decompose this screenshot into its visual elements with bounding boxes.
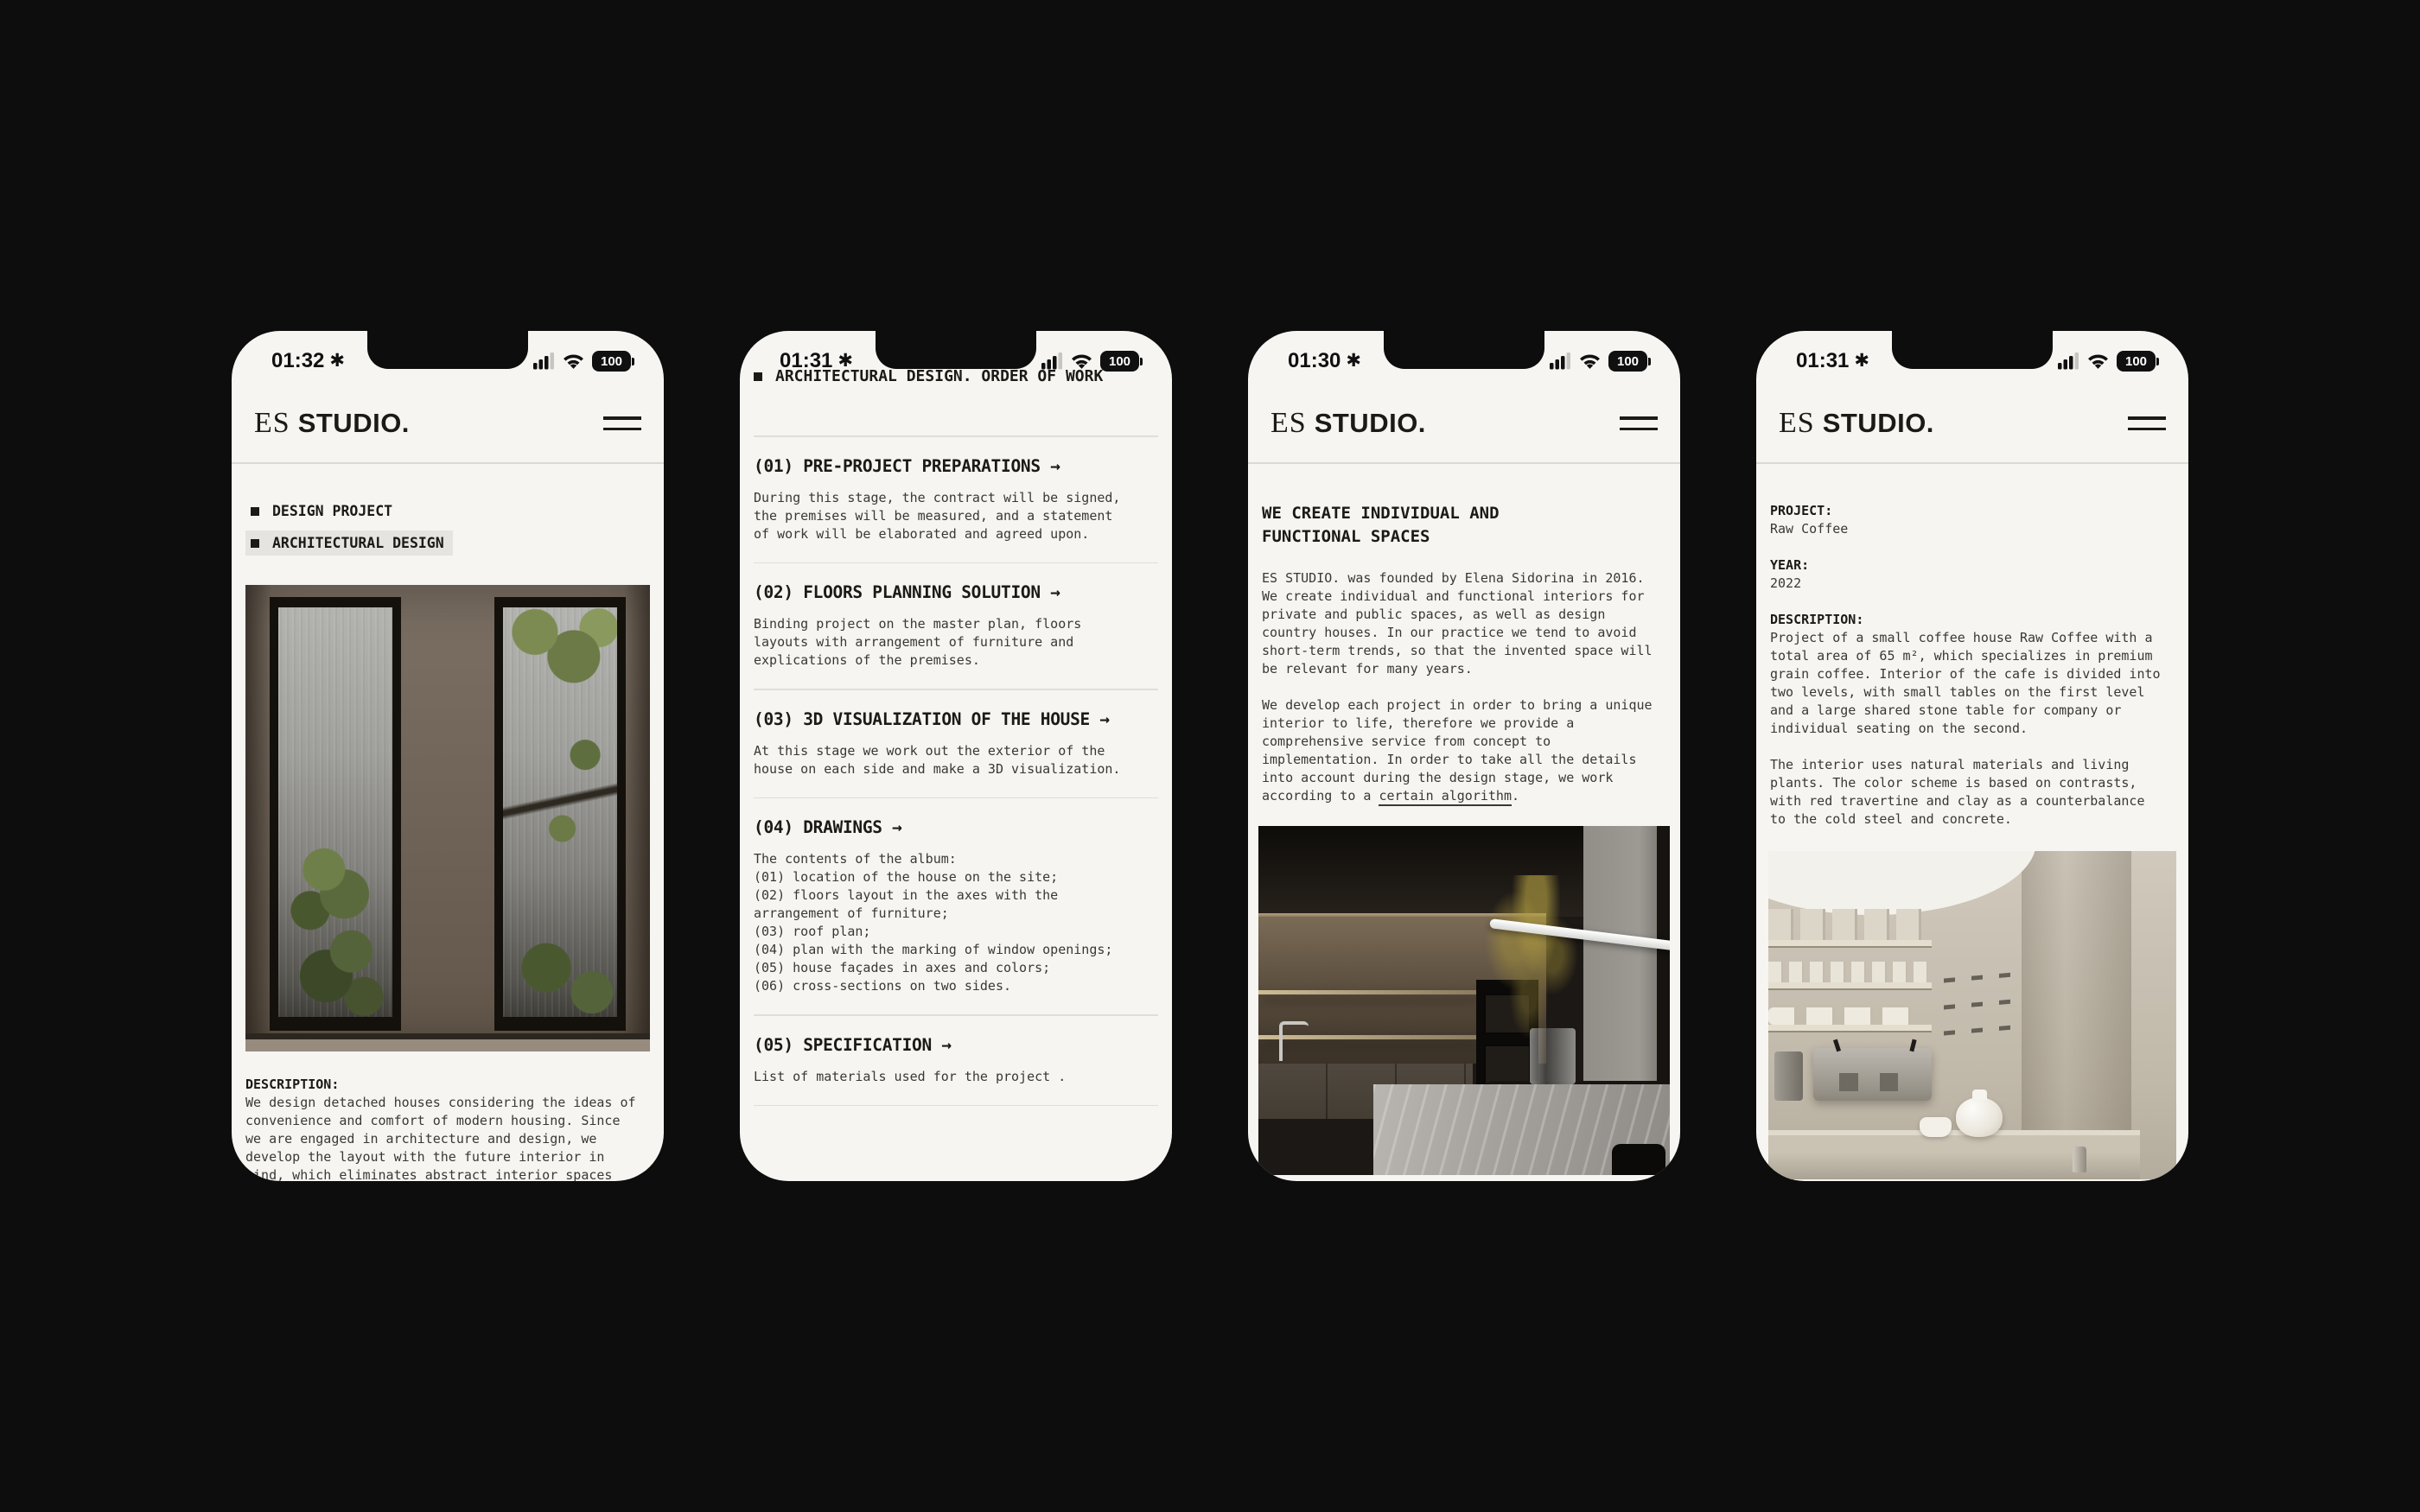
work-stage-title: (03) 3D VISUALIZATION OF THE HOUSE → <box>754 709 1158 729</box>
cups-row <box>1768 962 1927 982</box>
header-divider <box>232 462 664 464</box>
status-time: 01:32✱ <box>271 349 345 373</box>
logo-studio: STUDIO. <box>298 408 410 439</box>
work-stage-01-link[interactable]: (01) PRE-PROJECT PREPARATIONS → During t… <box>740 437 1172 562</box>
espresso-machine <box>1813 1048 1932 1101</box>
battery-icon: 100 <box>1608 351 1651 372</box>
focus-mode-icon: ✱ <box>329 350 345 371</box>
window-right <box>494 597 626 1031</box>
shelf <box>1768 982 1932 988</box>
hamburger-menu-icon[interactable] <box>603 416 641 430</box>
group-head <box>1839 1073 1858 1091</box>
wifi-icon <box>2087 353 2109 370</box>
logo-studio: STUDIO. <box>1823 408 1934 439</box>
es-studio-logo[interactable]: ESSTUDIO. <box>254 407 410 440</box>
notch <box>1384 331 1544 369</box>
work-stage-body: At this stage we work out the exterior o… <box>754 742 1158 778</box>
work-stage-title: (04) DRAWINGS → <box>754 817 1158 837</box>
battery-level: 100 <box>592 351 631 372</box>
bowls-row <box>1768 1007 1920 1025</box>
window-glass <box>278 607 392 1017</box>
work-stage-title: (05) SPECIFICATION → <box>754 1035 1158 1055</box>
project-meta: PROJECT: Raw Coffee YEAR: 2022 DESCRIPTI… <box>1770 502 2175 829</box>
divider <box>754 1105 1158 1107</box>
work-stage-02-link[interactable]: (02) FLOORS PLANNING SOLUTION → Binding … <box>740 563 1172 689</box>
battery-nub <box>1648 358 1651 365</box>
header-divider <box>1248 462 1680 464</box>
wifi-icon <box>1071 353 1092 370</box>
coffee-grinder <box>1774 1051 1803 1101</box>
phone-mockup-about-studio: 01:30✱ 100 ESSTUDIO. WE CREATE INDIVIDUA… <box>1248 331 1680 1181</box>
description-block: DESCRIPTION: We design detached houses c… <box>245 1076 650 1181</box>
wifi-icon <box>1579 353 1601 370</box>
group-head <box>1880 1073 1899 1091</box>
shelf <box>1768 940 1932 946</box>
ceramic-pot <box>1956 1097 2003 1137</box>
about-paragraph-1: ES STUDIO. was founded by Elena Sidorina… <box>1262 569 1666 678</box>
menu-item-architectural-design[interactable]: ARCHITECTURAL DESIGN <box>245 530 453 556</box>
wall-menu-text <box>1944 973 2013 983</box>
battery-nub <box>632 358 634 365</box>
certain-algorithm-link[interactable]: certain algorithm <box>1379 788 1512 806</box>
faucet <box>1279 1021 1309 1061</box>
status-time: 01:31✱ <box>1796 349 1869 373</box>
square-bullet-icon <box>251 539 259 548</box>
phone-mockup-order-of-work: 01:31✱ 100 ARCHITECTURAL DESIGN. ORDER O… <box>740 331 1172 1181</box>
phone-mockup-architectural-design: 01:32✱ 100 ESSTUDIO. DESIGN PROJECT ARCH… <box>232 331 664 1181</box>
hamburger-menu-icon[interactable] <box>1620 416 1658 430</box>
wall-menu-text <box>1944 999 2013 1009</box>
project-description-pair: DESCRIPTION: Project of a small coffee h… <box>1770 611 2175 829</box>
square-bullet-icon <box>251 507 259 516</box>
focus-mode-icon: ✱ <box>1346 350 1361 371</box>
description-paragraph-1: Project of a small coffee house Raw Coff… <box>1770 629 2175 738</box>
work-stage-body: The contents of the album: (01) location… <box>754 850 1158 995</box>
shelf <box>1258 990 1481 994</box>
battery-level: 100 <box>2117 351 2156 372</box>
cellular-signal-icon <box>533 353 555 370</box>
hamburger-menu-icon[interactable] <box>2128 416 2166 430</box>
wifi-icon <box>563 353 584 370</box>
cellular-signal-icon <box>1041 353 1063 370</box>
tree-foliage <box>503 607 617 1017</box>
es-studio-logo[interactable]: ESSTUDIO. <box>1779 407 1934 440</box>
project-value: Raw Coffee <box>1770 520 2175 538</box>
work-stage-04-link[interactable]: (04) DRAWINGS → The contents of the albu… <box>740 798 1172 1014</box>
es-studio-logo[interactable]: ESSTUDIO. <box>1270 407 1426 440</box>
plant-foliage <box>278 607 392 1017</box>
year-value: 2022 <box>1770 575 2175 593</box>
logo-studio: STUDIO. <box>1315 408 1426 439</box>
battery-level: 100 <box>1100 351 1139 372</box>
menu-item-design-project[interactable]: DESIGN PROJECT <box>245 499 401 524</box>
battery-nub <box>2156 358 2159 365</box>
description-label: DESCRIPTION: <box>1770 611 2175 629</box>
bar-chair <box>1612 1144 1665 1175</box>
architecture-photo <box>245 585 650 1051</box>
logo-es: ES <box>1779 407 1815 440</box>
kitchen-interior-photo <box>1258 826 1670 1175</box>
status-time: 01:31✱ <box>780 349 853 373</box>
mockup-stage: 01:32✱ 100 ESSTUDIO. DESIGN PROJECT ARCH… <box>0 0 2420 1512</box>
status-time: 01:30✱ <box>1288 349 1361 373</box>
cellular-signal-icon <box>1550 353 1571 370</box>
work-stage-03-link[interactable]: (03) 3D VISUALIZATION OF THE HOUSE → At … <box>740 690 1172 797</box>
battery-icon: 100 <box>1100 351 1143 372</box>
description-label: DESCRIPTION: <box>245 1076 650 1094</box>
project-label: PROJECT: <box>1770 502 2175 520</box>
year-label: YEAR: <box>1770 556 2175 575</box>
floor-strip <box>245 1039 650 1051</box>
notch <box>1892 331 2053 369</box>
focus-mode-icon: ✱ <box>1854 350 1869 371</box>
logo-es: ES <box>254 407 290 440</box>
wall-shadow-right <box>624 585 650 1051</box>
ceramic-bowl <box>1920 1117 1952 1137</box>
battery-icon: 100 <box>592 351 634 372</box>
description-text: We design detached houses considering th… <box>245 1094 650 1181</box>
project-year-pair: YEAR: 2022 <box>1770 556 2175 593</box>
wall-shadow-left <box>245 585 271 1051</box>
cellular-signal-icon <box>2058 353 2079 370</box>
battery-level: 100 <box>1608 351 1647 372</box>
battery-nub <box>1140 358 1143 365</box>
description-paragraph-2: The interior uses natural materials and … <box>1770 756 2175 829</box>
window-left <box>270 597 401 1031</box>
notch <box>367 331 528 369</box>
coffee-bar-photo <box>1768 851 2176 1179</box>
work-stage-title: (02) FLOORS PLANNING SOLUTION → <box>754 582 1158 602</box>
coffee-bags <box>1768 909 1923 940</box>
glass-vase <box>1530 1028 1575 1084</box>
battery-icon: 100 <box>2117 351 2159 372</box>
work-stage-body: Binding project on the master plan, floo… <box>754 615 1158 670</box>
ceiling-curve <box>1768 851 2036 915</box>
project-name-pair: PROJECT: Raw Coffee <box>1770 502 2175 538</box>
notch <box>876 331 1036 369</box>
work-stage-body: During this stage, the contract will be … <box>754 489 1158 543</box>
phone-mockup-raw-coffee-project: 01:31✱ 100 ESSTUDIO. PROJECT: Raw Coffee… <box>1756 331 2188 1181</box>
work-stage-title: (01) PRE-PROJECT PREPARATIONS → <box>754 456 1158 476</box>
about-paragraph-2: We develop each project in order to brin… <box>1262 696 1666 805</box>
logo-es: ES <box>1270 407 1307 440</box>
work-stage-05-link[interactable]: (05) SPECIFICATION → List of materials u… <box>740 1016 1172 1105</box>
page-title: WE CREATE INDIVIDUAL AND FUNCTIONAL SPAC… <box>1262 502 1666 549</box>
window-frame <box>1657 826 1670 1098</box>
window-glass <box>503 607 617 1017</box>
header-divider <box>1756 462 2188 464</box>
bottle <box>2073 1147 2087 1172</box>
section-menu: DESIGN PROJECT ARCHITECTURAL DESIGN <box>245 499 650 562</box>
wall-menu-text <box>1944 1026 2013 1036</box>
focus-mode-icon: ✱ <box>837 350 853 371</box>
work-stage-body: List of materials used for the project . <box>754 1068 1158 1086</box>
shelf <box>1768 1025 1932 1031</box>
